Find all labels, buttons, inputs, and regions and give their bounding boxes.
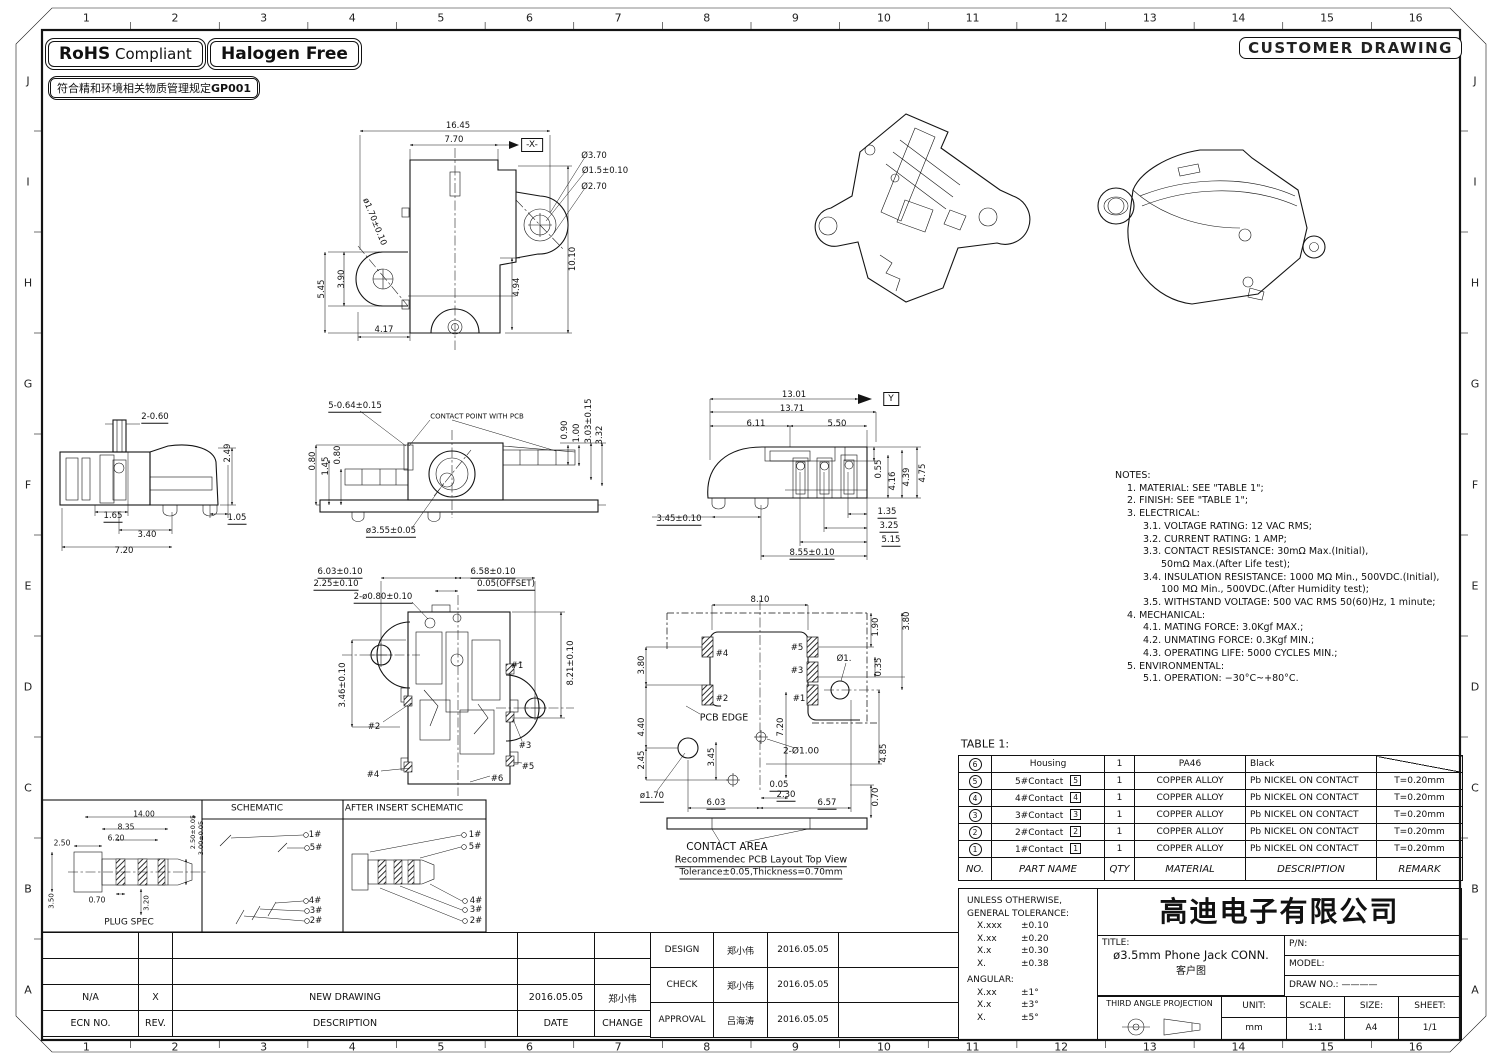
dim-label: 4.85 [880, 744, 889, 763]
approval-row: CHECK郑小伟2016.05.05 [651, 968, 959, 1003]
border-col-label: 11 [966, 12, 980, 25]
dim-label: 8.21±0.10 [567, 641, 576, 686]
dim-label: 1# [309, 831, 322, 840]
dim-label: 2.30 [777, 791, 796, 802]
border-row-label: C [1471, 781, 1479, 794]
scale-label-cell: SCALE: [1286, 996, 1345, 1018]
border-row-label: A [1471, 983, 1479, 996]
drawno-label: DRAW NO.: ———— [1285, 976, 1461, 990]
dim-label: 5.50 [828, 420, 847, 429]
dim-label: 7.70 [445, 136, 464, 145]
dim-label: 2.50 [54, 839, 71, 847]
item-number: 3 [969, 809, 982, 822]
tolerance-line1: UNLESS OTHERWISE, [967, 895, 1097, 908]
dim-label: 3.25 [880, 522, 899, 533]
border-col-label: 13 [1143, 1041, 1157, 1054]
tolerance-row: X.x±3° [967, 999, 1097, 1012]
border-col-label: 12 [1054, 12, 1068, 25]
border-col-label: 15 [1320, 1041, 1334, 1054]
note-line: 4. MECHANICAL: [1115, 610, 1439, 623]
dim-label: 3.03±0.15 [585, 399, 594, 444]
dim-label: #1 [793, 695, 806, 704]
rohs-rest-label: Compliant [115, 45, 192, 63]
dim-label: 2.49 [224, 444, 233, 463]
tolerance-line2: GENERAL TOLERANCE: [967, 908, 1097, 921]
drawno-cell: DRAW NO.: ———— [1284, 975, 1462, 997]
bom-header-row: NO.PART NAMEQTYMATERIALDESCRIPTIONREMARK [959, 858, 1463, 881]
border-row-label: E [1472, 579, 1479, 592]
item-number: 1 [969, 843, 982, 856]
note-line: 3.5. WITHSTAND VOLTAGE: 500 VAC RMS 50(6… [1115, 597, 1439, 610]
border-col-label: 12 [1054, 1041, 1068, 1054]
dim-label: 4.16 [889, 472, 898, 491]
note-line: 3.3. CONTACT RESISTANCE: 30mΩ Max.(Initi… [1115, 546, 1439, 559]
pcb-layout-tolerance: Tolerance±0.05,Thickness=0.70mm [680, 869, 843, 880]
approval-row: DESIGN郑小伟2016.05.05 [651, 933, 959, 968]
border-col-label: 1 [83, 1041, 90, 1054]
dim-label: 0.80 [334, 446, 343, 465]
approval-row: APPROVAL吕海涛2016.05.05 [651, 1003, 959, 1038]
dim-label: 1# [469, 831, 482, 840]
contact-area-label: CONTACT AREA [686, 842, 767, 853]
dim-label: 0.35 [875, 658, 884, 677]
border-row-label: G [24, 377, 33, 390]
dim-label: 5-0.64±0.15 [328, 402, 381, 413]
border-row-label: C [24, 781, 32, 794]
dim-label: 6.03 [707, 799, 726, 810]
dim-label: 16.45 [446, 122, 470, 131]
item-tag: 4 [1070, 792, 1081, 803]
isometric-view-closed [1098, 150, 1325, 304]
customer-drawing-stamp: CUSTOMER DRAWING [1239, 37, 1462, 59]
dim-label: Ø1. [837, 655, 852, 664]
border-col-label: 10 [877, 1041, 891, 1054]
dim-label: 0.70 [872, 788, 881, 807]
border-col-label: 15 [1320, 12, 1334, 25]
note-line: 3.2. CURRENT RATING: 1 AMP; [1115, 534, 1439, 547]
tolerance-row: X.xxx±0.10 [967, 920, 1097, 933]
note-line: 3.4. INSULATION RESISTANCE: 1000 MΩ Min.… [1115, 572, 1439, 585]
dim-label: 7.20 [777, 718, 786, 737]
dim-label: Ø3.70 [581, 152, 607, 161]
dim-label: 0.05(OFFSET) [477, 580, 535, 591]
dim-label: 2.25±0.10 [314, 580, 359, 591]
dim-label: 4.75 [919, 464, 928, 483]
projection-label: THIRD ANGLE PROJECTION [1098, 997, 1221, 1008]
isometric-view-open [815, 114, 1030, 302]
note-line: NOTES: [1115, 470, 1439, 483]
border-row-label: B [24, 882, 32, 895]
border-col-label: 5 [437, 1041, 444, 1054]
dim-label: #5 [791, 644, 804, 653]
dim-label: 5.45 [318, 280, 327, 299]
dim-label: Y [883, 392, 899, 406]
dim-label: 0.55 [875, 460, 884, 479]
dim-label: 4# [309, 897, 322, 906]
dim-label: 0.80 [309, 452, 318, 471]
item-tag: 2 [1070, 826, 1081, 837]
bom-row: 6Housing1PA46Black [959, 756, 1463, 773]
note-line: 4.3. OPERATING LIFE: 5000 CYCLES MIN.; [1115, 648, 1439, 661]
dim-label: 2# [470, 917, 483, 926]
dim-label: 2-ø0.80±0.10 [354, 593, 413, 604]
dim-label: 3.20 [144, 895, 151, 911]
border-row-label: F [25, 478, 31, 491]
border-col-label: 8 [703, 1041, 710, 1054]
dim-label: 0.70 [89, 896, 106, 904]
bom-row: 44#Contact41COPPER ALLOYPb NICKEL ON CON… [959, 790, 1463, 807]
border-col-label: 3 [260, 1041, 267, 1054]
note-line: 5. ENVIRONMENTAL: [1115, 661, 1439, 674]
dim-label: 3.45 [708, 748, 717, 767]
tolerance-row: X.xx±0.20 [967, 933, 1097, 946]
border-row-label: A [24, 983, 32, 996]
dim-label: 3# [310, 907, 323, 916]
border-col-label: 14 [1231, 1041, 1245, 1054]
dim-label: 1.65 [104, 512, 123, 523]
scale-value-cell: 1:1 [1286, 1017, 1345, 1040]
border-row-label: J [26, 74, 29, 87]
dim-label: #3 [519, 742, 532, 751]
tolerance-row: X.x±0.30 [967, 945, 1097, 958]
projection-cell: THIRD ANGLE PROJECTION [1097, 996, 1222, 1040]
pcb-layout-caption: Recommendec PCB Layout Top View [675, 855, 847, 867]
note-line: 2. FINISH: SEE "TABLE 1"; [1115, 495, 1439, 508]
border-row-label: I [26, 175, 29, 188]
border-col-label: 5 [437, 12, 444, 25]
tolerance-row: X.±0.38 [967, 958, 1097, 971]
bom-table: 6Housing1PA46Black55#Contact51COPPER ALL… [958, 755, 1463, 881]
dim-label: 3.80 [638, 656, 647, 675]
revision-table: N/AXNEW DRAWING2016.05.05郑小伟ECN NO.REV.D… [42, 932, 651, 1037]
border-col-label: 13 [1143, 12, 1157, 25]
border-col-label: 11 [966, 1041, 980, 1054]
dim-label: 6.57 [818, 799, 837, 810]
approval-table: DESIGN郑小伟2016.05.05CHECK郑小伟2016.05.05APP… [650, 932, 959, 1038]
border-col-label: 7 [615, 12, 622, 25]
notes-block: NOTES:1. MATERIAL: SEE "TABLE 1";2. FINI… [1115, 470, 1439, 686]
border-col-label: 7 [615, 1041, 622, 1054]
dim-label: 5# [469, 843, 482, 852]
company-cell: 高迪电子有限公司 [1097, 888, 1462, 936]
model-label: MODEL: [1285, 956, 1461, 969]
rohs-bold-label: RoHS [59, 44, 110, 64]
size-label-cell: SIZE: [1344, 996, 1399, 1018]
top-plan-view [325, 131, 585, 350]
border-row-label: I [1473, 175, 1476, 188]
plug-spec-panels [42, 800, 486, 932]
dim-label: 2-0.60 [141, 413, 168, 424]
border-col-label: 8 [703, 12, 710, 25]
revision-row: N/AXNEW DRAWING2016.05.05郑小伟 [43, 985, 651, 1011]
unit-label-cell: UNIT: [1221, 996, 1287, 1018]
dim-label: 3.32 [596, 426, 605, 445]
dim-label: 8.35 [118, 823, 135, 831]
sheet-value-cell: 1/1 [1398, 1017, 1462, 1040]
note-line: 4.2. UNMATING FORCE: 0.3Kgf MIN.; [1115, 635, 1439, 648]
drawing-title: ø3.5mm Phone Jack CONN. [1098, 948, 1284, 962]
tolerance-block: UNLESS OTHERWISE, GENERAL TOLERANCE: X.x… [958, 888, 1098, 1040]
dim-label: ø1.70 [640, 792, 664, 803]
dim-label: 1.05 [228, 514, 247, 525]
cn-compliance-code: GP001 [211, 82, 251, 95]
revision-row [43, 933, 651, 959]
plug-spec-label: PLUG SPEC [104, 919, 154, 928]
border-row-label: F [1472, 478, 1478, 491]
bottom-view [342, 578, 574, 796]
dim-label: 1.00 [573, 424, 582, 443]
note-line: 1. MATERIAL: SEE "TABLE 1"; [1115, 483, 1439, 496]
model-cell: MODEL: [1284, 955, 1462, 976]
dim-label: 3.45±0.10 [657, 515, 702, 526]
revision-row [43, 959, 651, 985]
title-label: TITLE: [1098, 936, 1284, 948]
dim-label: 3.46±0.10 [339, 663, 348, 708]
border-row-label: B [1471, 882, 1479, 895]
item-number: 5 [969, 775, 982, 788]
dim-label: 4.39 [903, 468, 912, 487]
sheet-label-cell: SHEET: [1398, 996, 1462, 1018]
item-tag: 5 [1070, 775, 1081, 786]
unit-value-cell: mm [1221, 1017, 1287, 1040]
title-cell: TITLE: ø3.5mm Phone Jack CONN. 客户图 [1097, 935, 1285, 996]
drawing-sheet: RoHS Compliant Halogen Free 符合精和环境相关物质管理… [0, 0, 1502, 1060]
dim-label: 3.90 [338, 270, 347, 289]
dim-label: 14.00 [133, 810, 154, 818]
border-row-label: D [1471, 680, 1479, 693]
dim-label: 2# [310, 917, 323, 926]
item-tag: 1 [1070, 843, 1081, 854]
dim-label: #3 [791, 667, 804, 676]
dim-label: 1.45 [322, 457, 331, 476]
item-number: 6 [969, 758, 982, 771]
dim-label: 3.80 [903, 612, 912, 631]
border-col-label: 16 [1409, 12, 1423, 25]
border-col-label: 16 [1409, 1041, 1423, 1054]
dim-label: 5# [310, 844, 323, 853]
bom-row: 33#Contact31COPPER ALLOYPb NICKEL ON CON… [959, 807, 1463, 824]
border-col-label: 2 [171, 1041, 178, 1054]
after-insert-schematic-label: AFTER INSERT SCHEMATIC [345, 805, 463, 814]
revision-header-row: ECN NO.REV.DESCRIPTIONDATECHANGE [43, 1011, 651, 1037]
dim-label: 7.20 [115, 547, 134, 556]
dim-label: 10.10 [569, 247, 578, 271]
dim-label: -X- [521, 138, 543, 152]
tolerance-row: X.±5° [967, 1012, 1097, 1025]
table1-title: TABLE 1: [961, 739, 1009, 750]
bom-row: 22#Contact21COPPER ALLOYPb NICKEL ON CON… [959, 824, 1463, 841]
dim-label: 2.45 [638, 751, 647, 770]
dim-label: 13.71 [780, 405, 804, 414]
dim-label: 1.35 [878, 508, 897, 519]
pn-label: P/N: [1285, 936, 1461, 949]
border-row-label: H [24, 276, 32, 289]
dim-label: #6 [491, 775, 504, 784]
dim-label: #4 [367, 771, 380, 780]
dim-label: Ø1.5±0.10 [582, 167, 628, 176]
border-col-label: 14 [1231, 12, 1245, 25]
border-row-label: D [24, 680, 32, 693]
border-row-label: J [1473, 74, 1476, 87]
angular-label: ANGULAR: [967, 974, 1097, 987]
dim-label: #4 [716, 650, 729, 659]
dim-label: 4.94 [513, 278, 522, 297]
pn-cell: P/N: [1284, 935, 1462, 956]
border-col-label: 4 [349, 12, 356, 25]
dim-label: 6.03±0.10 [318, 568, 363, 579]
company-name: 高迪电子有限公司 [1098, 889, 1461, 935]
drawno-value: ———— [1341, 980, 1377, 990]
dim-label: #2 [716, 695, 729, 704]
note-line: 3.1. VOLTAGE RATING: 12 VAC RMS; [1115, 521, 1439, 534]
border-col-label: 4 [349, 1041, 356, 1054]
dim-label: 4.17 [375, 326, 394, 335]
note-line: 5.1. OPERATION: −30°C~+80°C. [1115, 673, 1439, 686]
dim-label: 6.11 [747, 420, 766, 429]
dim-label: 3.40 [138, 531, 157, 540]
item-tag: 3 [1070, 809, 1081, 820]
dim-label: 2.50±0.05 [190, 815, 197, 849]
dim-label: 13.01 [782, 391, 806, 400]
dim-label: #5 [522, 763, 535, 772]
dim-label: 3.00±0.05 [198, 821, 205, 855]
border-col-label: 1 [83, 12, 90, 25]
bom-row: 11#Contact11COPPER ALLOYPb NICKEL ON CON… [959, 841, 1463, 858]
border-row-label: E [25, 579, 32, 592]
dim-label: 6.58±0.10 [471, 568, 516, 579]
rohs-badge: RoHS Compliant [45, 38, 206, 70]
dim-label: 3.50 [49, 893, 56, 909]
size-value-cell: A4 [1344, 1017, 1399, 1040]
border-col-label: 6 [526, 12, 533, 25]
dim-label: 4.40 [638, 718, 647, 737]
dim-label: 1.90 [872, 618, 881, 637]
dim-label: 8.55±0.10 [790, 549, 835, 560]
dim-label: CONTACT POINT WITH PCB [430, 414, 524, 421]
dim-label: Ø2.70 [581, 183, 607, 192]
border-col-label: 10 [877, 12, 891, 25]
dim-label: 8.10 [751, 596, 770, 605]
cn-compliance-text: 符合精和环境相关物质管理规定 [57, 82, 211, 95]
dim-label: #1 [511, 662, 524, 671]
note-line: 4.1. MATING FORCE: 3.0Kgf MAX.; [1115, 622, 1439, 635]
border-col-label: 6 [526, 1041, 533, 1054]
border-col-label: 9 [792, 12, 799, 25]
halogen-free-label: Halogen Free [210, 41, 359, 67]
border-col-label: 9 [792, 1041, 799, 1054]
halogen-free-badge: Halogen Free [207, 38, 362, 70]
dim-label: 3# [470, 906, 483, 915]
border-col-label: 3 [260, 12, 267, 25]
border-col-label: 2 [171, 12, 178, 25]
dim-label: 2-Ø1.00 [783, 748, 819, 757]
dim-label: ø3.55±0.05 [366, 527, 416, 538]
drawing-subtitle: 客户图 [1098, 962, 1284, 977]
border-row-label: G [1471, 377, 1480, 390]
dim-label: PCB EDGE [700, 713, 749, 723]
border-row-label: H [1471, 276, 1479, 289]
dim-label: #2 [368, 723, 381, 732]
cn-compliance-badge: 符合精和环境相关物质管理规定GP001 [48, 76, 260, 100]
note-line: 100 MΩ Min., 500VDC.(After Humidity test… [1115, 584, 1439, 597]
item-number: 2 [969, 826, 982, 839]
dim-label: 0.90 [561, 421, 570, 440]
dim-label: 5.15 [882, 536, 901, 547]
item-number: 4 [969, 792, 982, 805]
schematic-label: SCHEMATIC [231, 805, 283, 814]
bom-row: 55#Contact51COPPER ALLOYPb NICKEL ON CON… [959, 773, 1463, 790]
note-line: 50mΩ Max.(After Life test); [1115, 559, 1439, 572]
dim-label: 6.20 [108, 834, 125, 842]
note-line: 3. ELECTRICAL: [1115, 508, 1439, 521]
tolerance-row: X.xx±1° [967, 987, 1097, 1000]
